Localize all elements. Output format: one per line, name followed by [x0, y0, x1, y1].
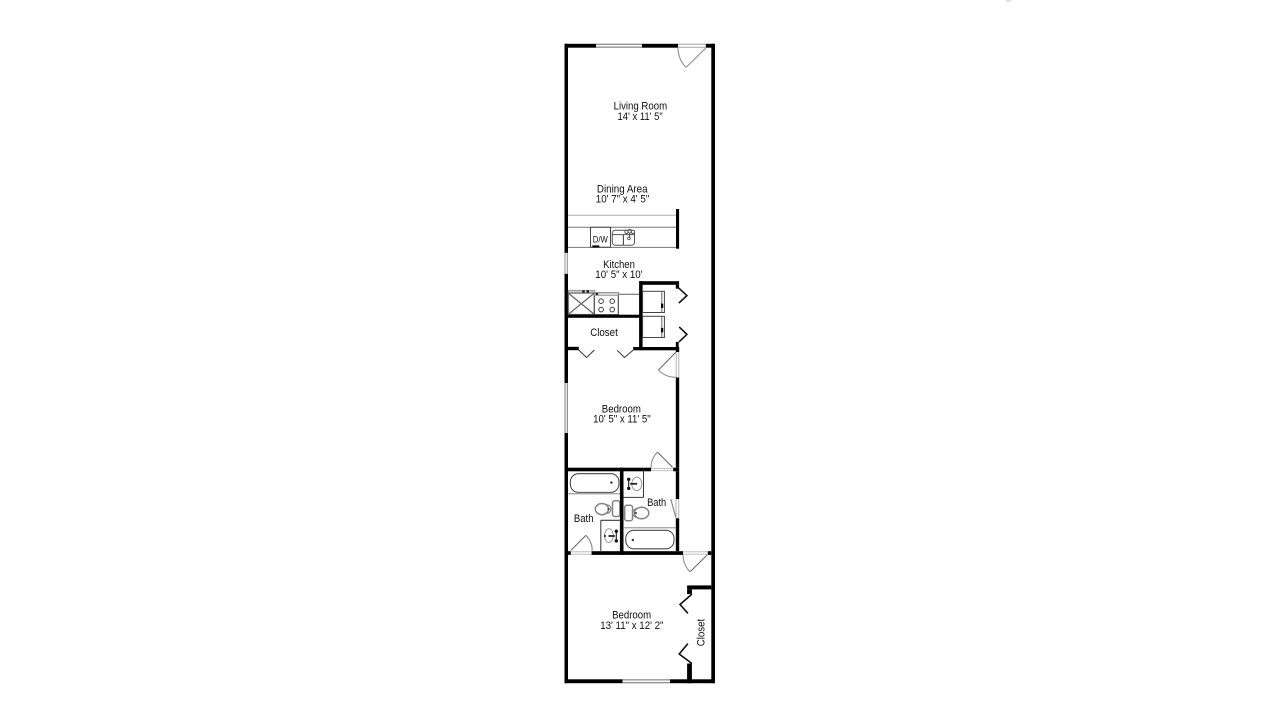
svg-text:Closet: Closet — [696, 619, 708, 647]
svg-text:10' 5" x 11' 5": 10' 5" x 11' 5" — [593, 414, 651, 426]
svg-text:D/W: D/W — [593, 235, 608, 245]
svg-text:Bath: Bath — [574, 513, 594, 525]
svg-text:Closet: Closet — [590, 327, 618, 339]
svg-text:Bath: Bath — [647, 497, 666, 509]
svg-text:13' 11" x 12' 2": 13' 11" x 12' 2" — [600, 620, 664, 632]
svg-text:14' x 11' 5": 14' x 11' 5" — [618, 111, 664, 123]
svg-text:10' 7" x 4' 5": 10' 7" x 4' 5" — [596, 194, 650, 206]
svg-text:10' 5" x 10': 10' 5" x 10' — [595, 269, 642, 281]
